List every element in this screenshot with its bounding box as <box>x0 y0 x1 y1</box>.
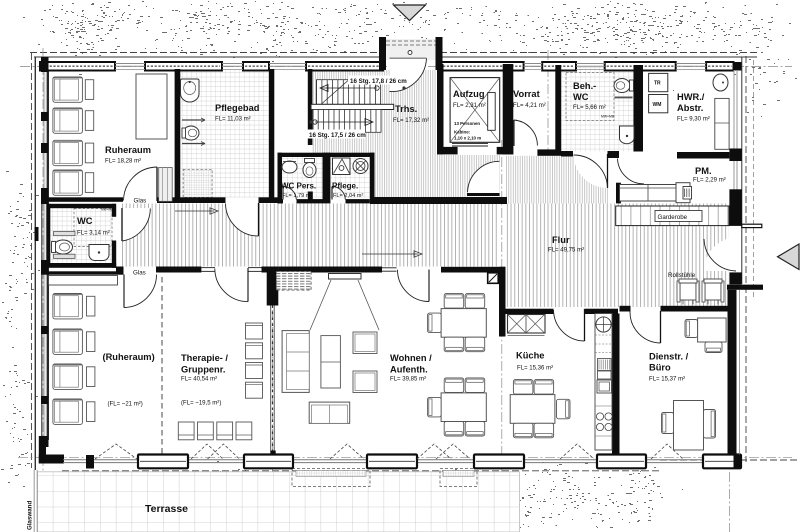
svg-text:FL= 5,66 m²: FL= 5,66 m² <box>573 105 606 111</box>
svg-text:Abstr.: Abstr. <box>677 103 703 113</box>
svg-text:FL= 18,28 m²: FL= 18,28 m² <box>105 159 141 165</box>
svg-text:Pflege.: Pflege. <box>332 182 358 191</box>
svg-text:Glas: Glas <box>133 270 146 277</box>
svg-text:Vorrat: Vorrat <box>513 89 540 99</box>
svg-text:1,10 x 2,10 m: 1,10 x 2,10 m <box>454 136 481 141</box>
svg-text:Ruheraum: Ruheraum <box>105 145 151 155</box>
svg-text:FL= 1,79 m²: FL= 1,79 m² <box>282 193 312 199</box>
svg-text:Aufenth.: Aufenth. <box>390 365 428 375</box>
svg-text:Dienstr. /: Dienstr. / <box>649 352 689 362</box>
svg-text:13 Personen: 13 Personen <box>454 121 480 126</box>
svg-text:TR: TR <box>654 81 661 87</box>
svg-text:FL= 2,29 m²: FL= 2,29 m² <box>693 178 726 184</box>
svg-text:Rollstühle: Rollstühle <box>668 272 696 279</box>
svg-text:FL= 49,75 m²: FL= 49,75 m² <box>548 248 584 254</box>
svg-text:Aufzug: Aufzug <box>453 89 485 99</box>
svg-text:Garderobe: Garderobe <box>658 214 688 221</box>
svg-text:Wohnen /: Wohnen / <box>390 353 432 363</box>
svg-text:WC: WC <box>77 216 93 226</box>
svg-text:16 Stg. 17,5 / 26 cm: 16 Stg. 17,5 / 26 cm <box>309 132 366 139</box>
svg-text:Glas: Glas <box>134 198 147 205</box>
svg-text:Gruppenr.: Gruppenr. <box>181 365 225 375</box>
svg-text:FL= 40,54 m²: FL= 40,54 m² <box>181 377 217 383</box>
svg-text:HWR./: HWR./ <box>677 92 705 102</box>
svg-text:PM.: PM. <box>695 166 712 176</box>
svg-text:FL= 39,85 m²: FL= 39,85 m² <box>390 377 426 383</box>
svg-text:MW+MB: MW+MB <box>601 115 615 119</box>
svg-text:FL= 15,36 m²: FL= 15,36 m² <box>517 366 553 372</box>
svg-text:Büro: Büro <box>649 363 671 373</box>
svg-text:Trhs.: Trhs. <box>395 104 417 114</box>
svg-text:(Ruheraum): (Ruheraum) <box>103 352 155 362</box>
svg-text:FL= 15,37 m²: FL= 15,37 m² <box>649 377 685 383</box>
svg-text:(FL= ~19,5 m²): (FL= ~19,5 m²) <box>181 401 221 407</box>
svg-text:FL= 11,03 m²: FL= 11,03 m² <box>215 117 251 123</box>
svg-text:FL= 9,30 m²: FL= 9,30 m² <box>677 117 710 123</box>
svg-text:(FL= ~21 m²): (FL= ~21 m²) <box>108 402 143 408</box>
svg-text:FL= 4,21 m²: FL= 4,21 m² <box>513 103 546 109</box>
svg-text:Therapie- /: Therapie- / <box>181 353 228 363</box>
svg-text:WC: WC <box>573 92 589 102</box>
svg-text:FL= 3,14 m²: FL= 3,14 m² <box>77 231 110 237</box>
svg-text:Glaswand: Glaswand <box>27 501 34 530</box>
svg-text:Pflegebad: Pflegebad <box>215 103 260 113</box>
svg-text:Küche: Küche <box>516 351 544 361</box>
svg-text:Kabine:: Kabine: <box>454 130 471 135</box>
svg-text:Beh.-: Beh.- <box>573 81 596 91</box>
svg-text:WM: WM <box>653 102 662 108</box>
svg-text:16 Stg. 17,8 / 26 cm: 16 Stg. 17,8 / 26 cm <box>350 78 407 85</box>
svg-text:FL= 17,32 m²: FL= 17,32 m² <box>393 118 429 124</box>
svg-text:Terrasse: Terrasse <box>145 503 188 515</box>
svg-text:WC Pers.: WC Pers. <box>281 182 316 191</box>
svg-text:FL= 2,04 m²: FL= 2,04 m² <box>333 193 363 199</box>
svg-text:Flur: Flur <box>552 235 570 245</box>
svg-text:FL= 2,31 m²: FL= 2,31 m² <box>453 103 486 109</box>
